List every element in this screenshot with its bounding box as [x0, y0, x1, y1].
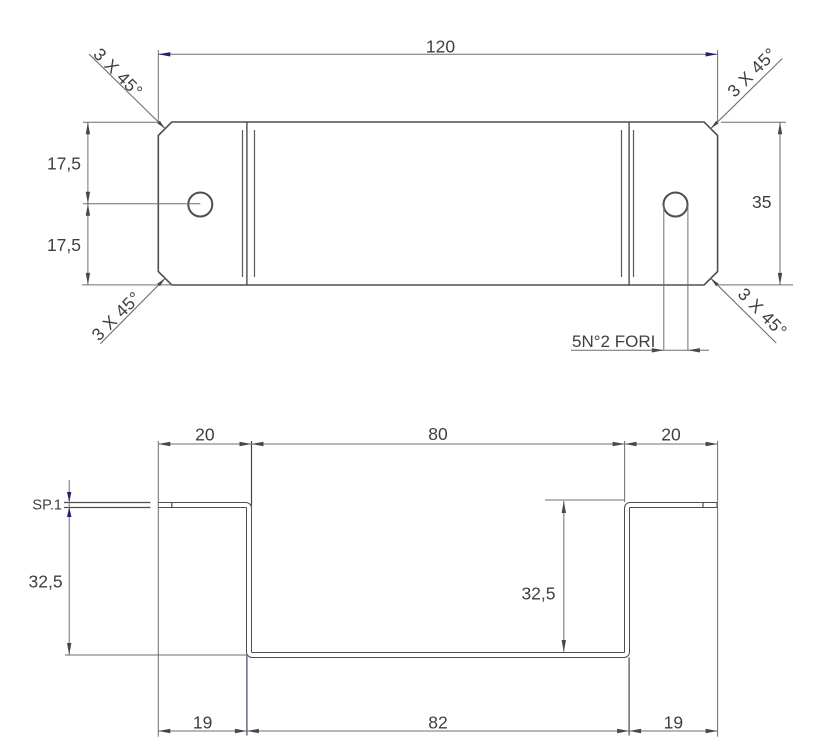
- svg-text:32,5: 32,5: [29, 572, 63, 592]
- svg-text:19: 19: [664, 713, 683, 733]
- svg-text:19: 19: [193, 713, 212, 733]
- svg-text:17,5: 17,5: [47, 154, 81, 174]
- svg-text:3 X 45°: 3 X 45°: [88, 287, 145, 344]
- svg-text:82: 82: [428, 713, 447, 733]
- svg-text:SP.1: SP.1: [32, 498, 62, 514]
- svg-text:3 X 45°: 3 X 45°: [89, 44, 146, 101]
- svg-text:35: 35: [752, 192, 771, 212]
- svg-text:3 X 45°: 3 X 45°: [723, 44, 780, 101]
- svg-text:120: 120: [426, 37, 455, 57]
- svg-text:20: 20: [661, 425, 681, 445]
- svg-text:20: 20: [195, 425, 215, 445]
- svg-text:17,5: 17,5: [47, 235, 81, 255]
- svg-text:32,5: 32,5: [521, 584, 555, 604]
- svg-text:80: 80: [428, 424, 448, 444]
- svg-text:5N°2 FORI: 5N°2 FORI: [572, 332, 655, 351]
- svg-text:3 X 45°: 3 X 45°: [734, 284, 791, 341]
